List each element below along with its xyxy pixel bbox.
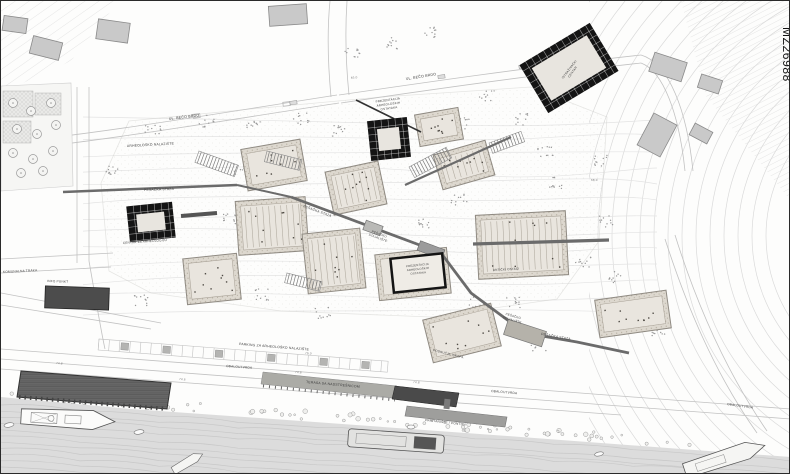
ruin-excavation (302, 228, 366, 294)
pedestrian-stop-platform (504, 319, 547, 347)
street-label: KOMUNALNA TRAKA (3, 268, 38, 274)
spot-elevation: 76.0 (305, 351, 312, 356)
spot-elevation: 74.8 (295, 370, 302, 375)
ruin-excavation (183, 253, 242, 304)
grid-pavilion (126, 202, 176, 243)
existing-building (268, 4, 307, 27)
spot-elevation: 74.8 (413, 380, 420, 385)
site-plan-canvas: MŽ26988 PREZENTACIJA ARHEOLOŠKIH OSTATAK… (1, 1, 790, 474)
deck-connector (443, 399, 450, 410)
ruin-excavation (235, 197, 309, 256)
park-gardens (1, 83, 73, 191)
spot-elevation: 65.0 (351, 75, 358, 80)
ruin-excavation (415, 107, 464, 146)
info-point-building (45, 286, 110, 310)
street-label: OBALOUTVRDA (491, 389, 518, 395)
existing-building (649, 52, 688, 82)
existing-building (637, 113, 677, 157)
info-point-label: INFO PUNKT (47, 279, 68, 284)
parking-label: PARKING ZA ARHEOLOŠKO NALAZIŠTE (239, 341, 310, 352)
ruin-excavation (595, 290, 672, 338)
spot-elevation: 74.8 (56, 361, 63, 365)
dinghy (407, 425, 415, 429)
site-plan-sheet: MŽ26988 PREZENTACIJA ARHEOLOŠKIH OSTATAK… (0, 0, 790, 474)
spot-elevation: 74.6 (179, 377, 186, 381)
spot-elevation: 68.0 (591, 178, 598, 182)
drawing-code: MŽ26988 (780, 27, 790, 82)
street-label: UL. BEČO BRDO (405, 71, 436, 81)
street-label: OBALOUTVRDA (226, 364, 253, 370)
existing-building (96, 19, 130, 43)
grid-pavilion (367, 117, 411, 161)
existing-building (2, 15, 28, 33)
